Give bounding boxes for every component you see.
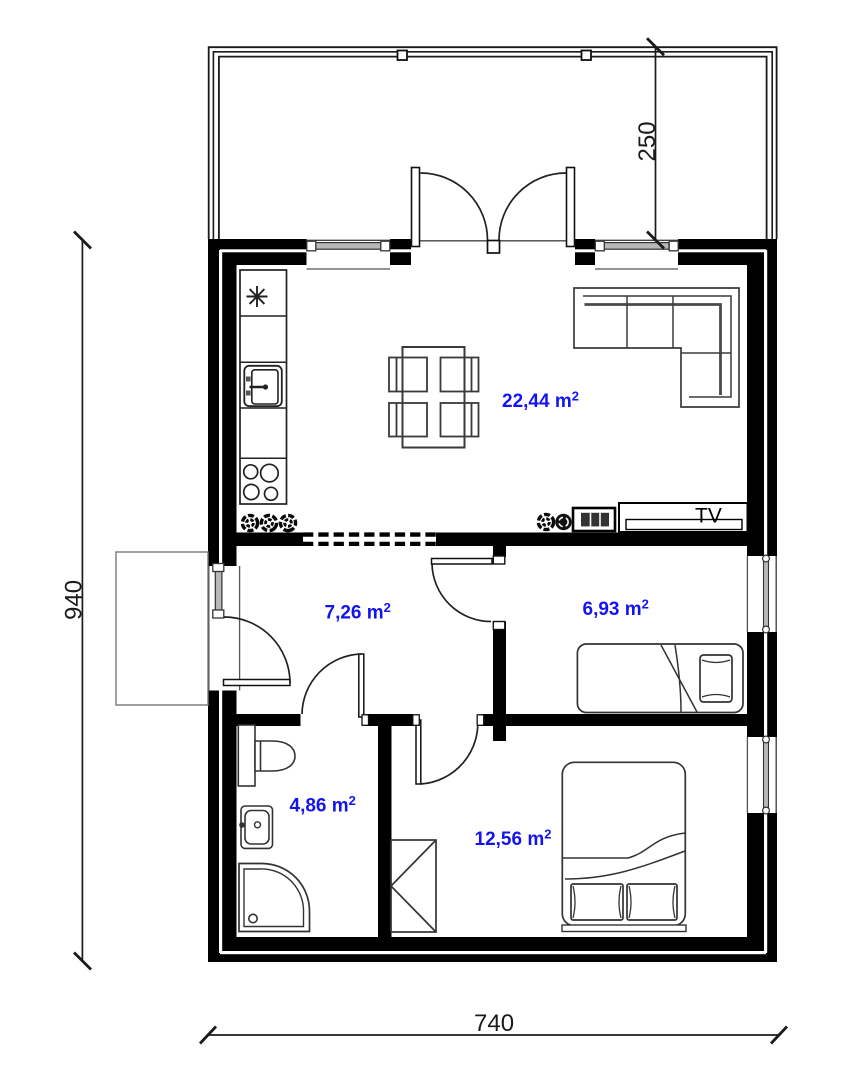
svg-text:7,26 m2: 7,26 m2 — [325, 600, 391, 624]
svg-text:940: 940 — [61, 580, 88, 620]
svg-text:TV: TV — [695, 505, 722, 528]
svg-text:4,86 m2: 4,86 m2 — [290, 793, 356, 817]
svg-text:740: 740 — [474, 1010, 514, 1037]
svg-text:22,44 m2: 22,44 m2 — [502, 389, 579, 413]
svg-text:12,56 m2: 12,56 m2 — [475, 827, 552, 851]
svg-text:250: 250 — [634, 121, 661, 161]
svg-text:6,93 m2: 6,93 m2 — [583, 597, 649, 621]
